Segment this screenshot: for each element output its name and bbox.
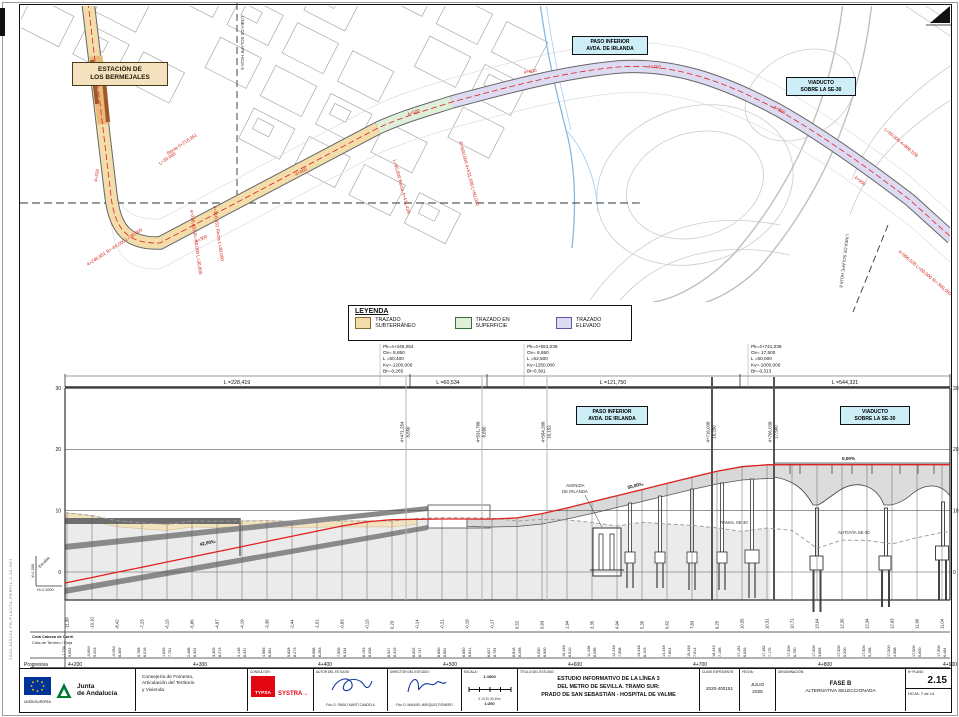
svg-text:0,93: 0,93 bbox=[540, 620, 545, 629]
svg-text:8,328: 8,328 bbox=[368, 647, 372, 657]
hoja-valor: 7 de 14 bbox=[921, 691, 934, 696]
legend-label: TRAZADO SUBTERRÁNEO bbox=[375, 317, 439, 329]
autor-name: Fdo: D. PABLO MARTÍ CANDELA bbox=[314, 703, 387, 707]
svg-text:-3,38: -3,38 bbox=[265, 619, 270, 629]
svg-text:12,34: 12,34 bbox=[865, 618, 870, 629]
svg-text:17,500: 17,500 bbox=[837, 645, 841, 657]
svg-text:3,35: 3,35 bbox=[590, 620, 595, 629]
svg-text:-5,86: -5,86 bbox=[190, 619, 195, 629]
svg-text:10: 10 bbox=[55, 509, 61, 515]
svg-text:2,468: 2,468 bbox=[187, 647, 191, 657]
svg-text:8,861: 8,861 bbox=[443, 647, 447, 657]
hoja-header: HOJA: bbox=[908, 691, 920, 696]
titulo-line2: DEL METRO DE SEVILLA. TRAMO SUR: bbox=[518, 684, 699, 692]
svg-text:6,668: 6,668 bbox=[312, 647, 316, 657]
consultor-header: CONSULTOR: bbox=[250, 670, 271, 674]
autor-signature bbox=[328, 674, 374, 698]
fecha-header: FECHA: bbox=[742, 670, 754, 674]
svg-text:4+200: 4+200 bbox=[93, 168, 100, 182]
svg-text:8,103: 8,103 bbox=[643, 647, 647, 657]
base-map bbox=[0, 0, 959, 306]
svg-text:-6,13: -6,13 bbox=[165, 619, 170, 629]
svg-text:1,94: 1,94 bbox=[565, 620, 570, 629]
tb-titulo-cell: TÍTULO DEL ESTUDIO: ESTUDIO INFORMATIVO … bbox=[517, 669, 699, 711]
tb-denominacion-cell: DENOMINACIÓN: FASE B ALTERNATIVA SELECCI… bbox=[775, 669, 905, 711]
svg-text:4+246,951 R=-64,000 L=30,000: 4+246,951 R=-64,000 L=30,000 bbox=[86, 227, 144, 267]
svg-text:17,500: 17,500 bbox=[937, 645, 941, 657]
svg-text:L =228,419: L =228,419 bbox=[224, 380, 251, 386]
titulo-line3: PRADO DE SAN SEBASTIÁN - HOSPITAL DE VAL… bbox=[518, 692, 699, 700]
svg-text:8,627: 8,627 bbox=[487, 647, 491, 657]
plan-annotations: 4+200Recta 4+216,951L=30,0004+256,951 R=… bbox=[86, 16, 953, 297]
station-label-line1: ESTACIÓN DE bbox=[77, 66, 163, 74]
svg-text:13,448: 13,448 bbox=[637, 645, 641, 657]
svg-text:4,148: 4,148 bbox=[237, 647, 241, 657]
svg-text:8,818: 8,818 bbox=[512, 647, 516, 657]
svg-text:0,788: 0,788 bbox=[137, 647, 141, 657]
tb-autor-cell: AUTOR DEL ESTUDIO: Fdo: D. PABLO MARTÍ C… bbox=[313, 669, 387, 711]
svg-text:-11,39: -11,39 bbox=[65, 617, 70, 629]
escala-200: 1:200 bbox=[462, 701, 517, 706]
title-block: UNIÓN EUROPEA Junta de Andalucía Conseje… bbox=[20, 668, 951, 711]
svg-text:8,337: 8,337 bbox=[243, 647, 247, 657]
clave-header: CLAVE EXPEDIENTE: bbox=[702, 670, 734, 674]
fecha-mes: JULIO bbox=[740, 683, 775, 690]
svg-text:16,443: 16,443 bbox=[712, 645, 716, 657]
tb-logos-cell: UNIÓN EUROPEA Junta de Andalucía bbox=[20, 669, 135, 711]
pf-viaducto-line2: SOBRE LA SE-30 bbox=[844, 416, 906, 423]
svg-text:5,158: 5,158 bbox=[868, 647, 872, 657]
svg-text:9,530: 9,530 bbox=[537, 647, 541, 657]
legend-swatch bbox=[556, 317, 572, 329]
svg-text:AUTOVÍA SE-30: AUTOVÍA SE-30 bbox=[838, 530, 870, 535]
svg-text:8,600: 8,600 bbox=[543, 647, 547, 657]
legend-label: TRAZADO ELEVADO bbox=[576, 317, 625, 329]
director-name: Fdo: D. MANUEL MÁRQUEZ ROMERO bbox=[388, 703, 461, 707]
svg-text:4+700: 4+700 bbox=[648, 64, 662, 70]
svg-text:7,761: 7,761 bbox=[168, 647, 172, 657]
pf-paso-line2: AVDA. DE IRLANDA bbox=[580, 416, 644, 423]
svg-text:7,614: 7,614 bbox=[693, 647, 697, 657]
svg-text:Pk=4+553,038: Pk=4+553,038 bbox=[527, 344, 558, 349]
svg-text:LÍNEA DE SOLAPE HOJA 8: LÍNEA DE SOLAPE HOJA 8 bbox=[838, 234, 850, 289]
svg-text:Pk=4+446,054: Pk=4+446,054 bbox=[383, 344, 414, 349]
svg-text:H=1:1000: H=1:1000 bbox=[37, 588, 54, 592]
svg-text:6,62: 6,62 bbox=[665, 620, 670, 629]
svg-text:10,55: 10,55 bbox=[740, 618, 745, 629]
tb-clave-cell: CLAVE EXPEDIENTE: 2020-400151 bbox=[699, 669, 739, 711]
svg-text:8,650: 8,650 bbox=[482, 426, 487, 438]
svg-text:4,94: 4,94 bbox=[615, 620, 620, 629]
director-header: DIRECTOR DEL ESTUDIO: bbox=[390, 670, 430, 674]
profile-paso-inferior-box: PASO INFERIOR AVDA. DE IRLANDA bbox=[576, 406, 648, 425]
typsa-logo: TYPSA bbox=[251, 676, 275, 697]
svg-text:4+716,038: 4+716,038 bbox=[706, 421, 711, 442]
plan-paso-inferior-box: PASO INFERIOR AVDA. DE IRLANDA bbox=[572, 36, 648, 55]
svg-text:8,650: 8,650 bbox=[437, 647, 441, 657]
svg-text:17,500: 17,500 bbox=[862, 645, 866, 657]
svg-text:17,500: 17,500 bbox=[912, 645, 916, 657]
paso-line2: AVDA. DE IRLANDA bbox=[576, 46, 644, 53]
svg-text:L =50,400: L =50,400 bbox=[383, 356, 404, 361]
tb-consejeria-cell: Consejería de Fomento, Articulación del … bbox=[135, 669, 247, 711]
legend-item: TRAZADO ELEVADO bbox=[556, 317, 625, 329]
svg-text:7,175: 7,175 bbox=[768, 647, 772, 657]
denominacion-header: DENOMINACIÓN: bbox=[778, 670, 804, 674]
svg-text:-0,14: -0,14 bbox=[415, 619, 420, 629]
station-label-line2: LOS BERMEJALES bbox=[77, 74, 163, 82]
denominacion-fase: FASE B bbox=[776, 681, 905, 687]
svg-text:17,181: 17,181 bbox=[737, 645, 741, 657]
svg-text:L =62,500: L =62,500 bbox=[527, 356, 548, 361]
svg-text:-0,894: -0,894 bbox=[87, 646, 91, 657]
svg-text:11,448: 11,448 bbox=[587, 646, 591, 657]
director-signature bbox=[402, 674, 448, 698]
escala-header: ESCALA: bbox=[464, 670, 477, 674]
svg-text:4+900: 4+900 bbox=[853, 175, 867, 187]
svg-text:0,52: 0,52 bbox=[515, 620, 520, 629]
svg-text:-4,97: -4,97 bbox=[215, 619, 220, 629]
svg-text:DE IRLANDA: DE IRLANDA bbox=[562, 489, 588, 494]
plano-header: Nº PLANO: bbox=[908, 670, 924, 674]
svg-text:4+471,254: 4+471,254 bbox=[400, 421, 405, 442]
svg-text:10,152: 10,152 bbox=[547, 425, 552, 439]
profile-grid-and-data: 30302020101000L =228,419L =60,534L =121,… bbox=[24, 344, 959, 668]
titulo-line1: ESTUDIO INFORMATIVO DE LA LÍNEA 3 bbox=[518, 676, 699, 684]
svg-text:L =544,321: L =544,321 bbox=[832, 380, 859, 386]
svg-text:13,64: 13,64 bbox=[815, 618, 820, 629]
svg-text:L =50,000: L =50,000 bbox=[751, 356, 772, 361]
legend-items: TRAZADO SUBTERRÁNEOTRAZADO EN SUPERFICIE… bbox=[355, 317, 625, 329]
systra-arrow-icon: → bbox=[302, 691, 308, 697]
svg-text:Cota de Terreno / Roja: Cota de Terreno / Roja bbox=[32, 640, 73, 645]
svg-text:8,319: 8,319 bbox=[393, 647, 397, 657]
sheet-file-code: 2020-400151-FB-PLANTA-PERFIL-2.15-H07 bbox=[8, 558, 13, 660]
svg-text:4+531,788: 4+531,788 bbox=[476, 421, 481, 442]
tb-plano-cell: Nº PLANO: 2.15 HOJA: 7 de 14 bbox=[905, 669, 951, 711]
eu-flag-icon bbox=[24, 677, 51, 695]
svg-text:8,650: 8,650 bbox=[462, 647, 466, 657]
svg-text:-0,13: -0,13 bbox=[365, 619, 370, 629]
profile-viaducto-box: VIADUCTO SOBRE LA SE-30 bbox=[840, 406, 910, 425]
svg-text:8,547: 8,547 bbox=[387, 647, 391, 657]
legend-item: TRAZADO SUBTERRÁNEO bbox=[355, 317, 439, 329]
svg-text:12,93: 12,93 bbox=[890, 618, 895, 629]
svg-text:5,600: 5,600 bbox=[918, 647, 922, 657]
svg-text:L=60,000 4+866,528: L=60,000 4+866,528 bbox=[883, 127, 919, 158]
svg-text:8,283: 8,283 bbox=[318, 647, 322, 657]
svg-text:Bi=-0,313: Bi=-0,313 bbox=[751, 368, 772, 373]
scalebar-1000 bbox=[467, 687, 513, 692]
svg-text:-10,10: -10,10 bbox=[90, 616, 95, 629]
svg-text:7,198: 7,198 bbox=[718, 647, 722, 657]
svg-text:-7,23: -7,23 bbox=[140, 619, 145, 629]
svg-text:8,369: 8,369 bbox=[118, 647, 122, 657]
svg-text:11,90: 11,90 bbox=[915, 618, 920, 629]
svg-text:5,828: 5,828 bbox=[287, 647, 291, 657]
svg-text:0: 0 bbox=[58, 570, 61, 576]
tb-consultor-cell: CONSULTOR: TYPSA SYSTRA→ bbox=[247, 669, 313, 711]
svg-text:8,324: 8,324 bbox=[193, 647, 197, 657]
svg-text:17,500: 17,500 bbox=[774, 425, 779, 439]
junta-logo-icon bbox=[56, 682, 72, 699]
svg-text:-1,734: -1,734 bbox=[62, 646, 66, 657]
svg-text:V=1:200: V=1:200 bbox=[31, 564, 35, 578]
svg-text:15,448: 15,448 bbox=[687, 645, 691, 657]
svg-text:Ov= 8,650: Ov= 8,650 bbox=[527, 350, 549, 355]
svg-text:16,250: 16,250 bbox=[712, 425, 717, 439]
svg-text:8,334: 8,334 bbox=[343, 647, 347, 657]
svg-text:17,500: 17,500 bbox=[812, 645, 816, 657]
consejeria-line3: y Vivienda bbox=[142, 688, 241, 694]
svg-text:10: 10 bbox=[953, 509, 959, 515]
svg-text:Kv=1250,000: Kv=1250,000 bbox=[527, 362, 555, 367]
svg-text:Pk=4+741,038: Pk=4+741,038 bbox=[751, 344, 782, 349]
svg-text:8,018: 8,018 bbox=[143, 647, 147, 657]
svg-text:5,35: 5,35 bbox=[640, 620, 645, 629]
fecha-anio: 2025 bbox=[740, 690, 775, 697]
svg-text:4+584,288: 4+584,288 bbox=[541, 421, 546, 442]
svg-text:8,650: 8,650 bbox=[406, 426, 411, 438]
svg-text:0,23: 0,23 bbox=[390, 620, 395, 629]
clave-value: 2020-400151 bbox=[700, 686, 739, 691]
svg-text:1,626: 1,626 bbox=[162, 647, 166, 657]
segment-subterraneo bbox=[88, 2, 378, 243]
svg-text:0,00%: 0,00% bbox=[842, 456, 855, 461]
svg-text:LÍNEA DE SOLAPE HOJA 6: LÍNEA DE SOLAPE HOJA 6 bbox=[240, 16, 245, 70]
svg-text:30: 30 bbox=[953, 386, 959, 392]
svg-text:10,448: 10,448 bbox=[562, 645, 566, 657]
svg-text:8,298: 8,298 bbox=[518, 647, 522, 657]
tb-director-cell: DIRECTOR DEL ESTUDIO: Fdo: D. MANUEL MÁR… bbox=[387, 669, 461, 711]
svg-text:30: 30 bbox=[55, 386, 61, 392]
drawing-svg: 4+200Recta 4+216,951L=30,0004+256,951 R=… bbox=[0, 0, 959, 717]
svg-text:50,00‰: 50,00‰ bbox=[627, 481, 644, 490]
svg-text:-0,17: -0,17 bbox=[490, 619, 495, 629]
svg-text:7,83: 7,83 bbox=[690, 620, 695, 629]
svg-text:0: 0 bbox=[953, 570, 956, 576]
svg-text:-8,42: -8,42 bbox=[115, 619, 120, 629]
legend-item: TRAZADO EN SUPERFICIE bbox=[455, 317, 540, 329]
svg-text:10,71: 10,71 bbox=[790, 618, 795, 629]
legend-label: TRAZADO EN SUPERFICIE bbox=[476, 317, 540, 329]
svg-text:Cota Cabeza de Carril: Cota Cabeza de Carril bbox=[32, 634, 73, 639]
svg-text:-4,19: -4,19 bbox=[240, 619, 245, 629]
svg-text:20: 20 bbox=[953, 447, 959, 453]
viaducto-line2: SOBRE LA SE-30 bbox=[790, 87, 852, 94]
legend: LEYENDA TRAZADO SUBTERRÁNEOTRAZADO EN SU… bbox=[348, 305, 632, 341]
svg-text:8,098: 8,098 bbox=[593, 647, 597, 657]
svg-text:3,305: 3,305 bbox=[212, 647, 216, 657]
svg-text:8,794: 8,794 bbox=[493, 647, 497, 657]
svg-text:8,193: 8,193 bbox=[362, 647, 366, 657]
city-blocks bbox=[0, 0, 548, 244]
svg-text:4+766,038: 4+766,038 bbox=[768, 421, 773, 442]
junta-line2: de Andalucía bbox=[77, 690, 117, 697]
svg-text:5,200: 5,200 bbox=[843, 647, 847, 657]
svg-text:Kv=-1200,000: Kv=-1200,000 bbox=[383, 362, 413, 367]
svg-text:-1,61: -1,61 bbox=[315, 619, 320, 629]
svg-text:3,859: 3,859 bbox=[818, 647, 822, 657]
svg-text:-0,19: -0,19 bbox=[465, 619, 470, 629]
svg-text:17,482: 17,482 bbox=[762, 645, 766, 657]
svg-text:-2,44: -2,44 bbox=[290, 619, 295, 629]
svg-text:17,500: 17,500 bbox=[787, 645, 791, 657]
eu-flag-logo: UNIÓN EUROPEA bbox=[24, 677, 51, 704]
svg-text:12,30: 12,30 bbox=[840, 618, 845, 629]
svg-text:14,448: 14,448 bbox=[662, 645, 666, 657]
svg-text:6,790: 6,790 bbox=[793, 647, 797, 657]
sheet-trim-mark bbox=[0, 8, 5, 36]
svg-text:AVENIDA: AVENIDA bbox=[566, 483, 585, 488]
svg-text:9,25: 9,25 bbox=[715, 620, 720, 629]
svg-text:-0,83: -0,83 bbox=[340, 619, 345, 629]
svg-text:8,747: 8,747 bbox=[418, 647, 422, 657]
svg-text:RAMAL SE-30: RAMAL SE-30 bbox=[720, 520, 748, 525]
svg-text:17,500: 17,500 bbox=[887, 645, 891, 657]
svg-text:7,824: 7,824 bbox=[668, 647, 672, 657]
eu-caption: UNIÓN EUROPEA bbox=[24, 700, 51, 704]
systra-logo: SYSTRA→ bbox=[278, 691, 308, 697]
systra-text: SYSTRA bbox=[278, 691, 302, 697]
escala-1000: 1:1000 bbox=[462, 674, 517, 679]
svg-text:7,508: 7,508 bbox=[618, 647, 622, 657]
station-label-box: ESTACIÓN DE LOS BERMEJALES bbox=[72, 62, 168, 86]
svg-text:Ov= 8,650: Ov= 8,650 bbox=[383, 350, 405, 355]
svg-text:-0,21: -0,21 bbox=[440, 619, 445, 629]
junta-line1: Junta bbox=[77, 683, 117, 690]
svg-text:7,506: 7,506 bbox=[337, 647, 341, 657]
svg-text:8,273: 8,273 bbox=[293, 647, 297, 657]
svg-text:L =60,534: L =60,534 bbox=[436, 380, 460, 386]
svg-text:6,464: 6,464 bbox=[943, 647, 947, 657]
svg-text:8,273: 8,273 bbox=[218, 647, 222, 657]
svg-text:4,986: 4,986 bbox=[262, 647, 266, 657]
tb-escala-cell: ESCALA: 1:1000 0 10 20 30 40m 1:200 FORM… bbox=[461, 669, 517, 711]
svg-text:4,568: 4,568 bbox=[893, 647, 897, 657]
svg-text:8,510: 8,510 bbox=[568, 647, 572, 657]
autor-header: AUTOR DEL ESTUDIO: bbox=[316, 670, 350, 674]
svg-text:9,203: 9,203 bbox=[93, 647, 97, 657]
tb-fecha-cell: FECHA: JULIO 2025 bbox=[739, 669, 775, 711]
svg-text:8,602: 8,602 bbox=[412, 647, 416, 657]
svg-text:Kv=-1000,000: Kv=-1000,000 bbox=[751, 362, 781, 367]
svg-text:Ov= 17,500: Ov= 17,500 bbox=[751, 350, 776, 355]
overlap-lines bbox=[20, 3, 888, 312]
svg-text:10,31: 10,31 bbox=[765, 618, 770, 629]
svg-text:8,361: 8,361 bbox=[268, 647, 272, 657]
svg-text:6,628: 6,628 bbox=[743, 647, 747, 657]
denominacion-alternativa: ALTERNATIVA SELECCIONADA bbox=[776, 689, 905, 694]
titulo-header: TÍTULO DEL ESTUDIO: bbox=[520, 670, 554, 674]
plan-viaducto-box: VIADUCTO SOBRE LA SE-30 bbox=[786, 77, 856, 96]
svg-text:8,841: 8,841 bbox=[468, 647, 472, 657]
svg-text:Escalas: Escalas bbox=[37, 555, 50, 568]
svg-text:Bi=-0,265: Bi=-0,265 bbox=[383, 368, 404, 373]
legend-swatch bbox=[455, 317, 471, 329]
svg-text:20: 20 bbox=[55, 447, 61, 453]
svg-text:R=600,000 4+531,438 L=60,000: R=600,000 4+531,438 L=60,000 bbox=[458, 141, 480, 207]
svg-text:L =121,750: L =121,750 bbox=[600, 380, 627, 386]
svg-text:-0,054: -0,054 bbox=[112, 646, 116, 657]
legend-swatch bbox=[355, 317, 371, 329]
svg-text:4+966,528 L=60,000 R=-300,000: 4+966,528 L=60,000 R=-300,000 bbox=[897, 249, 953, 297]
segment-elevado bbox=[452, 66, 952, 238]
svg-text:12,448: 12,448 bbox=[612, 645, 616, 657]
svg-text:Bi=0,391: Bi=0,391 bbox=[527, 368, 546, 373]
svg-text:11,04: 11,04 bbox=[940, 618, 945, 629]
legend-title: LEYENDA bbox=[355, 308, 625, 315]
svg-text:9,652: 9,652 bbox=[68, 647, 72, 657]
